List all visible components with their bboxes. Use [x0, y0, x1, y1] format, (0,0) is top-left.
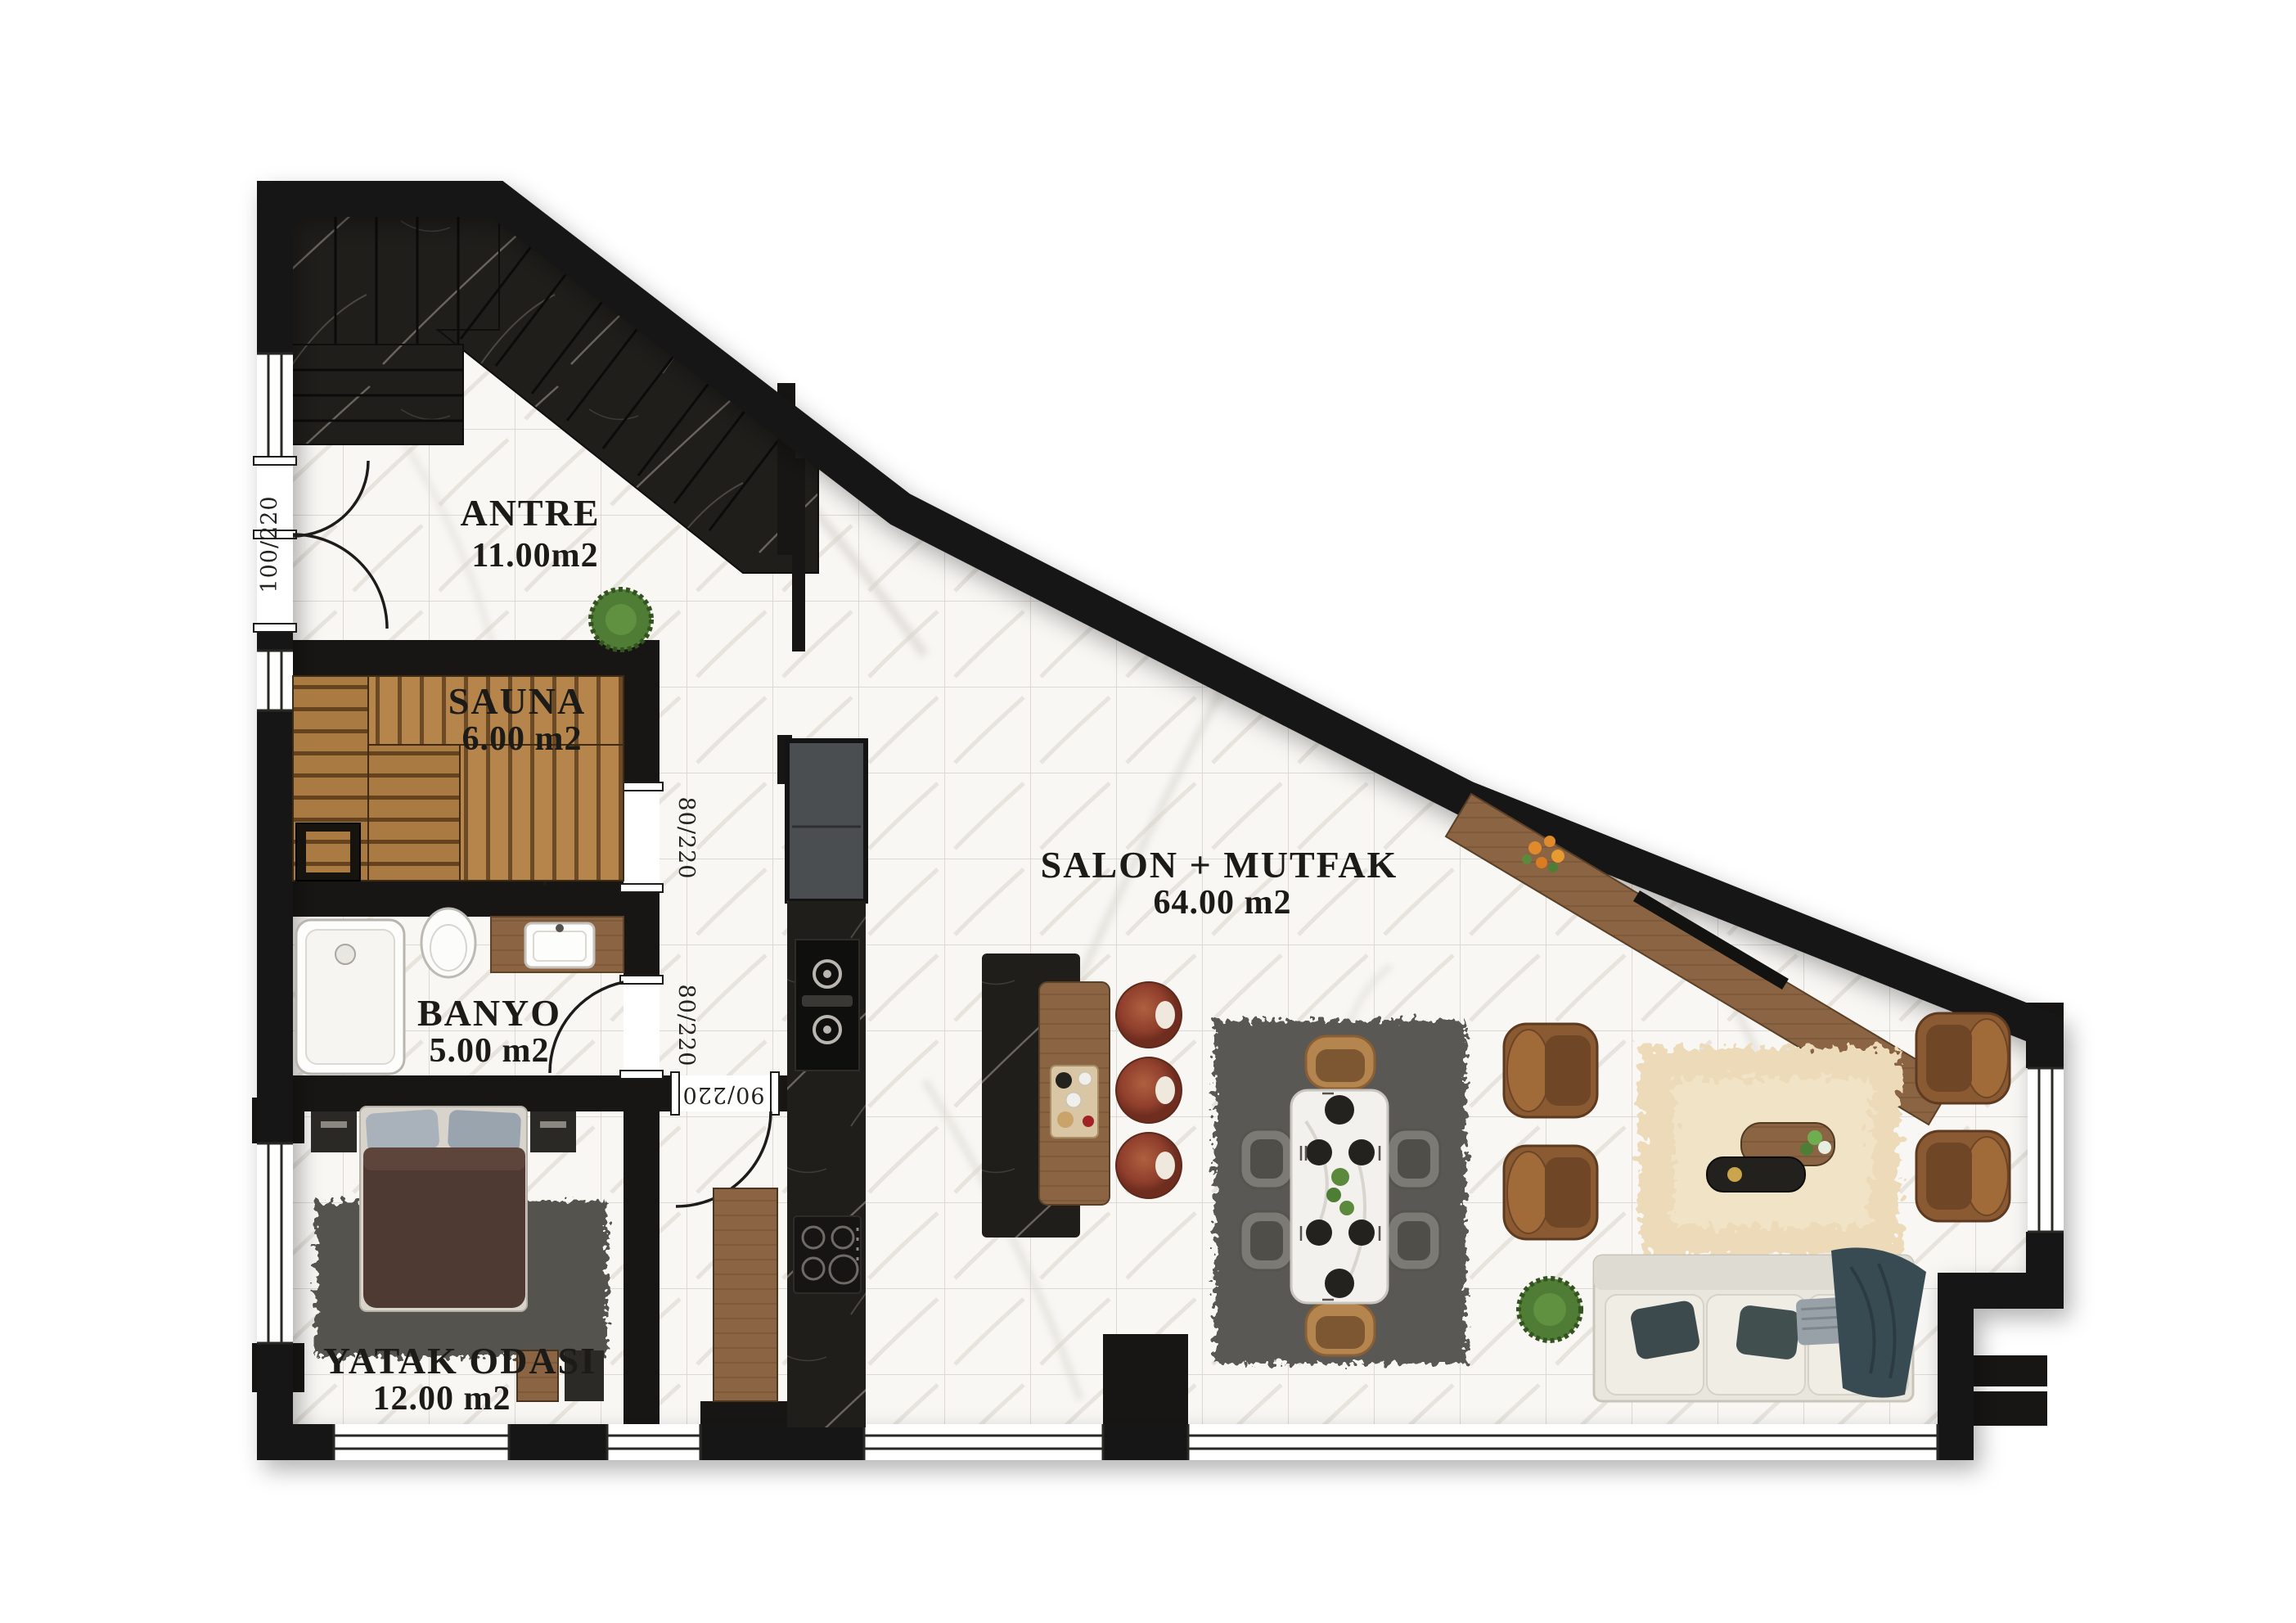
faucet [556, 924, 564, 932]
dining-chair-head-top-seat [1316, 1049, 1365, 1082]
banyo-door-jamb-top [620, 976, 663, 984]
fridge [787, 741, 866, 901]
oven-handle [802, 995, 853, 1007]
window-left-antre [257, 354, 293, 461]
tray-bowl-dark [1056, 1072, 1072, 1089]
bed [360, 1107, 527, 1311]
banyo-door-jamb-bottom [620, 1071, 663, 1079]
duvet-fold [363, 1147, 525, 1170]
wall-fin-antre-2 [792, 458, 805, 651]
wall-bedroom-right [624, 1111, 660, 1442]
bar-stools [1116, 982, 1182, 1198]
dining-chair-head-bottom-seat [1316, 1316, 1365, 1349]
bar-stool-3-hole [1155, 1152, 1175, 1179]
label-salon-area: 64.00 m2 [1154, 884, 1292, 922]
place-setting-4 [1348, 1220, 1375, 1246]
sauna-door-size-label: 80/220 [673, 797, 699, 880]
armchair-left-1-backroll [1507, 1030, 1550, 1111]
centerpiece-greens-1 [1331, 1168, 1349, 1186]
banyo-door-opening [624, 981, 660, 1075]
armchair-left-1-seat [1545, 1035, 1591, 1106]
table-flower-3 [1800, 1143, 1813, 1156]
wall-corridor-sauna-upper [624, 640, 660, 787]
sofa-pillow-2 [1736, 1305, 1802, 1361]
entry-door-size-label: 100/220 [257, 495, 282, 593]
place-setting-bottom [1325, 1269, 1354, 1298]
label-sauna-area: 6.00 m2 [462, 720, 583, 758]
wall-corridor-between-doors [624, 888, 660, 981]
armchair-right-1 [1916, 1013, 2010, 1103]
tray-bowl-red [1083, 1116, 1094, 1127]
sauna-door-jamb-bottom [620, 884, 663, 892]
wall-antre-sauna [257, 640, 660, 676]
oven-stack [795, 940, 859, 1071]
bar-stool-1-hole [1155, 1001, 1175, 1029]
vanity-sink [491, 917, 624, 972]
floor-plan-canvas: 100/220 80/220 80/220 90/220 [0, 0, 2296, 1623]
pillow-left [365, 1109, 439, 1153]
bedroom-door-size-label: 90/220 [682, 1082, 765, 1107]
armchair-left-2-backroll [1507, 1152, 1550, 1233]
exterior-ledge-bar-1 [1965, 1355, 2047, 1386]
label-yatak-area: 12.00 m2 [373, 1380, 511, 1418]
table-flower-1 [1808, 1130, 1822, 1145]
label-yatak-name: YATAK ODASI [323, 1340, 597, 1382]
plant-salon-center [1533, 1293, 1566, 1326]
bar-stool-2-hole [1155, 1076, 1175, 1104]
window-left-sauna [257, 651, 293, 710]
shower-tray [296, 920, 404, 1074]
corridor-wardrobe [714, 1188, 777, 1401]
sauna-heater-grate [306, 832, 350, 872]
tray-cup-1 [1078, 1072, 1092, 1085]
exterior-ledge-bar-2 [1965, 1391, 2047, 1426]
window-right-bay [2028, 1068, 2064, 1232]
window-bottom-corridor [607, 1424, 700, 1460]
label-salon-name: SALON + MUTFAK [1041, 844, 1398, 886]
floor-plan-drawing: 100/220 80/220 80/220 90/220 [0, 0, 2296, 1623]
sauna-bench-main [460, 745, 624, 881]
entry-door-jamb-top [254, 457, 296, 465]
dining-chair-right-2-seat [1398, 1221, 1430, 1260]
dining-table [1291, 1090, 1388, 1303]
armchair-right-2 [1916, 1131, 2010, 1221]
nightstand-right-handle [540, 1121, 566, 1128]
centerpiece-greens-2 [1326, 1188, 1341, 1202]
armchair-left-2-seat [1545, 1157, 1591, 1228]
entry-door-jamb-bottom [254, 624, 296, 632]
toilet [421, 908, 475, 977]
bedroom-door-jamb-right [771, 1072, 779, 1115]
window-bottom-salon-2 [1188, 1424, 1938, 1460]
label-banyo-name: BANYO [417, 992, 561, 1034]
dining-chair-left-2-seat [1250, 1221, 1283, 1260]
armchair-right-1-seat [1926, 1025, 1972, 1092]
armchair-left-2 [1504, 1146, 1597, 1239]
place-setting-top [1325, 1095, 1354, 1125]
stair-flight-top [290, 214, 499, 345]
label-antre-area: 11.00m2 [471, 537, 598, 575]
place-setting-3 [1306, 1220, 1332, 1246]
armchair-right-2-seat [1926, 1143, 1972, 1210]
shower-drain [335, 944, 355, 964]
plant-antre-center [606, 604, 637, 635]
label-sauna-name: SAUNA [448, 680, 586, 722]
sauna-door-opening [624, 787, 660, 888]
centerpiece-greens-3 [1339, 1201, 1354, 1215]
place-setting-2 [1348, 1139, 1375, 1165]
armchair-left-1 [1504, 1024, 1597, 1117]
sauna-door-jamb-top [620, 782, 663, 791]
nightstand-left-handle [321, 1121, 347, 1128]
nightstand-right [530, 1111, 576, 1152]
dining-chair-right-1-seat [1398, 1139, 1430, 1179]
table-gold-knob [1727, 1167, 1742, 1182]
tray-cup-2 [1066, 1093, 1081, 1107]
table-flower-2 [1818, 1141, 1831, 1154]
wall-pier-salon-bottom [1103, 1334, 1188, 1434]
bedroom-door-jamb-left [671, 1072, 679, 1115]
nightstand-left [311, 1111, 357, 1152]
label-banyo-area: 5.00 m2 [430, 1032, 550, 1070]
dining-chair-left-1-seat [1250, 1139, 1283, 1179]
place-setting-1 [1306, 1139, 1332, 1165]
window-left-bedroom [257, 1143, 293, 1343]
banyo-door-size-label: 80/220 [673, 985, 699, 1067]
kitchen-island [982, 954, 1110, 1238]
window-bottom-bedroom [334, 1424, 509, 1460]
sofa [1594, 1247, 1926, 1401]
cooktop [794, 1216, 861, 1293]
dining-area [1214, 1020, 1466, 1364]
window-bottom-salon-1 [864, 1424, 1103, 1460]
sauna-step [368, 745, 460, 881]
duvet [363, 1147, 525, 1308]
pillow-right [448, 1110, 521, 1153]
tray-plate-wood [1057, 1111, 1074, 1128]
label-antre-name: ANTRE [460, 492, 600, 534]
coffee-table-black [1707, 1157, 1805, 1192]
